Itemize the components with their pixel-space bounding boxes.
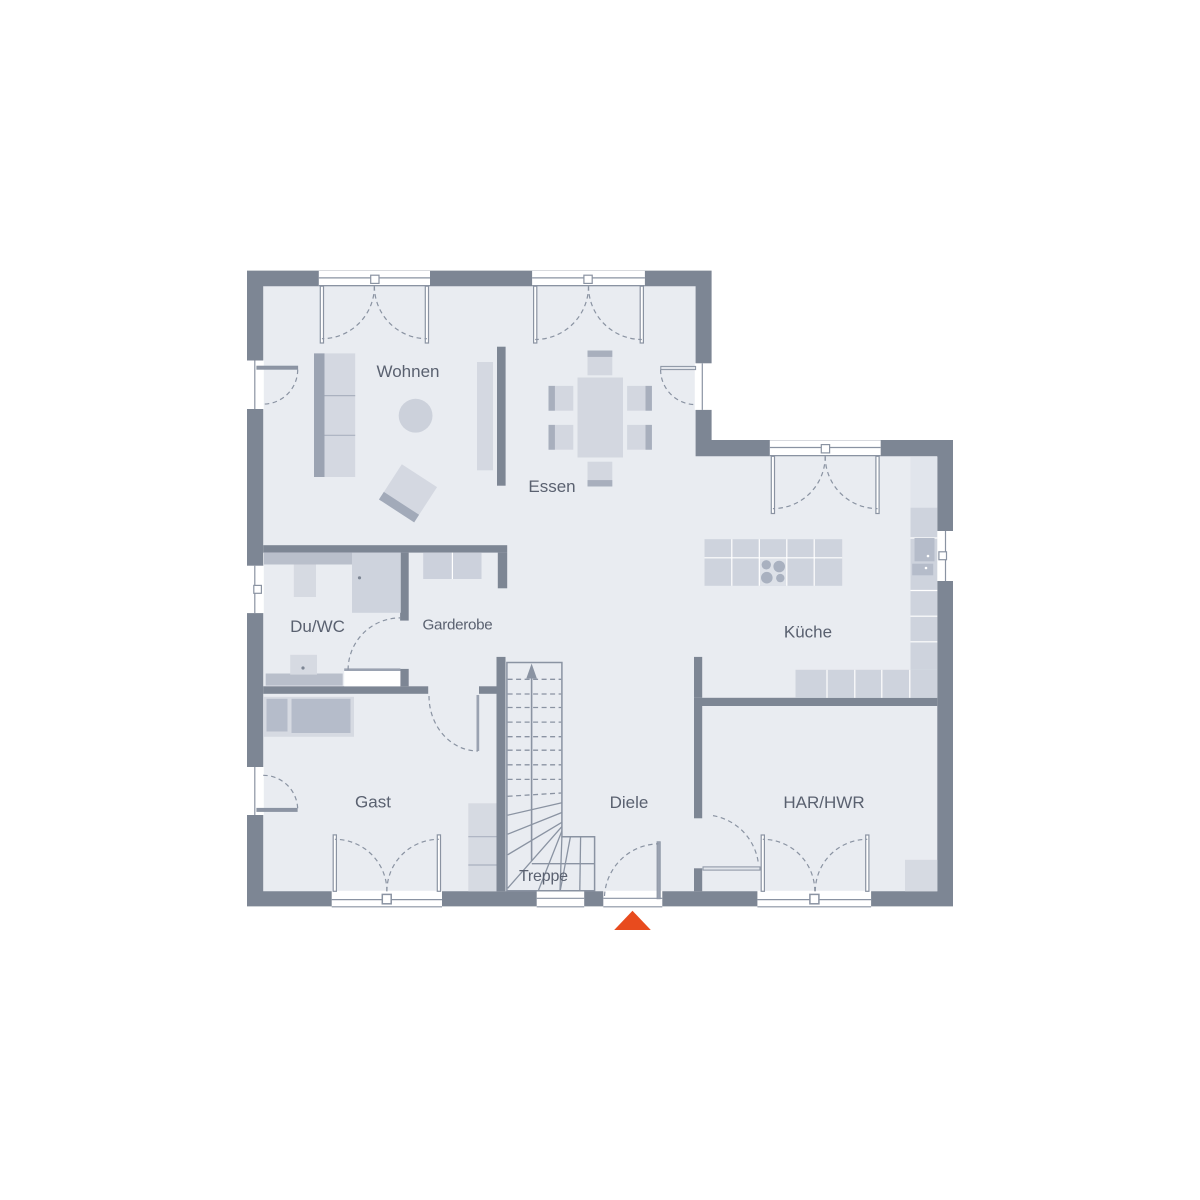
svg-text:HAR/HWR: HAR/HWR	[783, 793, 864, 812]
svg-text:Diele: Diele	[610, 793, 649, 812]
svg-text:Garderobe: Garderobe	[423, 617, 493, 634]
svg-text:Küche: Küche	[784, 623, 832, 642]
svg-text:Wohnen: Wohnen	[376, 362, 439, 381]
svg-text:Gast: Gast	[355, 793, 391, 812]
svg-text:Treppe: Treppe	[519, 868, 568, 885]
svg-text:Du/WC: Du/WC	[290, 617, 345, 636]
svg-text:Essen: Essen	[528, 477, 575, 496]
